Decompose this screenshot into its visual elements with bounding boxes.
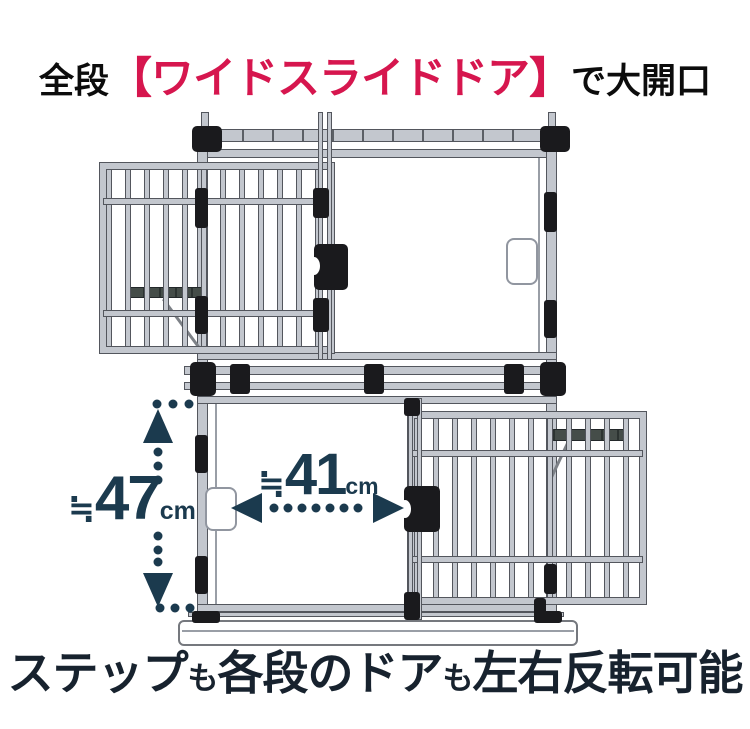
frame-clip [544, 192, 557, 232]
height-value: 47 [95, 468, 160, 530]
product-banner: 全段【ワイドスライドドア】で大開口 [0, 0, 750, 729]
frame-clip [364, 364, 384, 394]
door-stop-bracket-lower [205, 487, 237, 531]
junction-corner-block [540, 362, 566, 396]
base-rim-rail [188, 612, 564, 617]
bottom-headline-segment: 左右反転可能 [473, 647, 743, 699]
frame-clip [195, 296, 208, 334]
height-approx-symbol: ≒ [68, 492, 95, 524]
upper-slide-door [100, 163, 334, 353]
height-dimension-label: ≒47cm [68, 468, 196, 530]
lower-door-cross-rail [411, 450, 643, 457]
frame-clip [544, 300, 557, 338]
frame-clip [313, 188, 329, 218]
lower-slide-door [408, 412, 646, 604]
inner-wall-edge [538, 158, 540, 358]
frame-clip [404, 398, 420, 416]
cage-bottom-rail [197, 604, 557, 612]
frame-clip [404, 592, 420, 620]
bottom-headline-segment: 各段のドア [218, 647, 443, 699]
frame-clip [504, 364, 524, 394]
roof-top-rail [197, 129, 557, 142]
width-approx-symbol: ≒ [258, 467, 285, 499]
bottom-headline: ステップも各段のドアも左右反転可能 [0, 648, 750, 699]
frame-clip [195, 188, 208, 228]
roof-cap [540, 126, 570, 152]
bottom-headline-segment: ステップ [8, 647, 188, 699]
base-tray-line [182, 630, 574, 632]
height-unit: cm [160, 499, 196, 524]
frame-clip [544, 564, 557, 594]
upper-door-cross-rail [103, 198, 331, 205]
door-stop-bracket-upper [506, 238, 538, 285]
frame-clip [313, 298, 329, 332]
width-dimension-label: ≒41cm [258, 446, 379, 504]
base-tray [178, 620, 578, 646]
roof-second-rail [197, 149, 557, 158]
lower-door-cross-rail [411, 556, 643, 563]
width-unit: cm [345, 475, 378, 498]
bottom-headline-segment: も [443, 661, 473, 696]
base-foot [534, 611, 562, 623]
upper-door-cross-rail [103, 310, 331, 317]
width-value: 41 [285, 446, 346, 504]
frame-clip [195, 435, 208, 473]
door-latch-lower-notch [399, 500, 411, 518]
cage-illustration [0, 0, 750, 729]
lower-tier-top-rail [197, 396, 557, 404]
roof-cap [192, 126, 222, 152]
upper-tier-bottom-rail [197, 352, 557, 360]
frame-clip [230, 364, 250, 394]
junction-corner-block [190, 362, 216, 396]
base-foot [192, 611, 220, 623]
door-latch-upper-notch [308, 257, 320, 275]
bottom-headline-segment: も [188, 661, 218, 696]
frame-clip [195, 556, 208, 594]
